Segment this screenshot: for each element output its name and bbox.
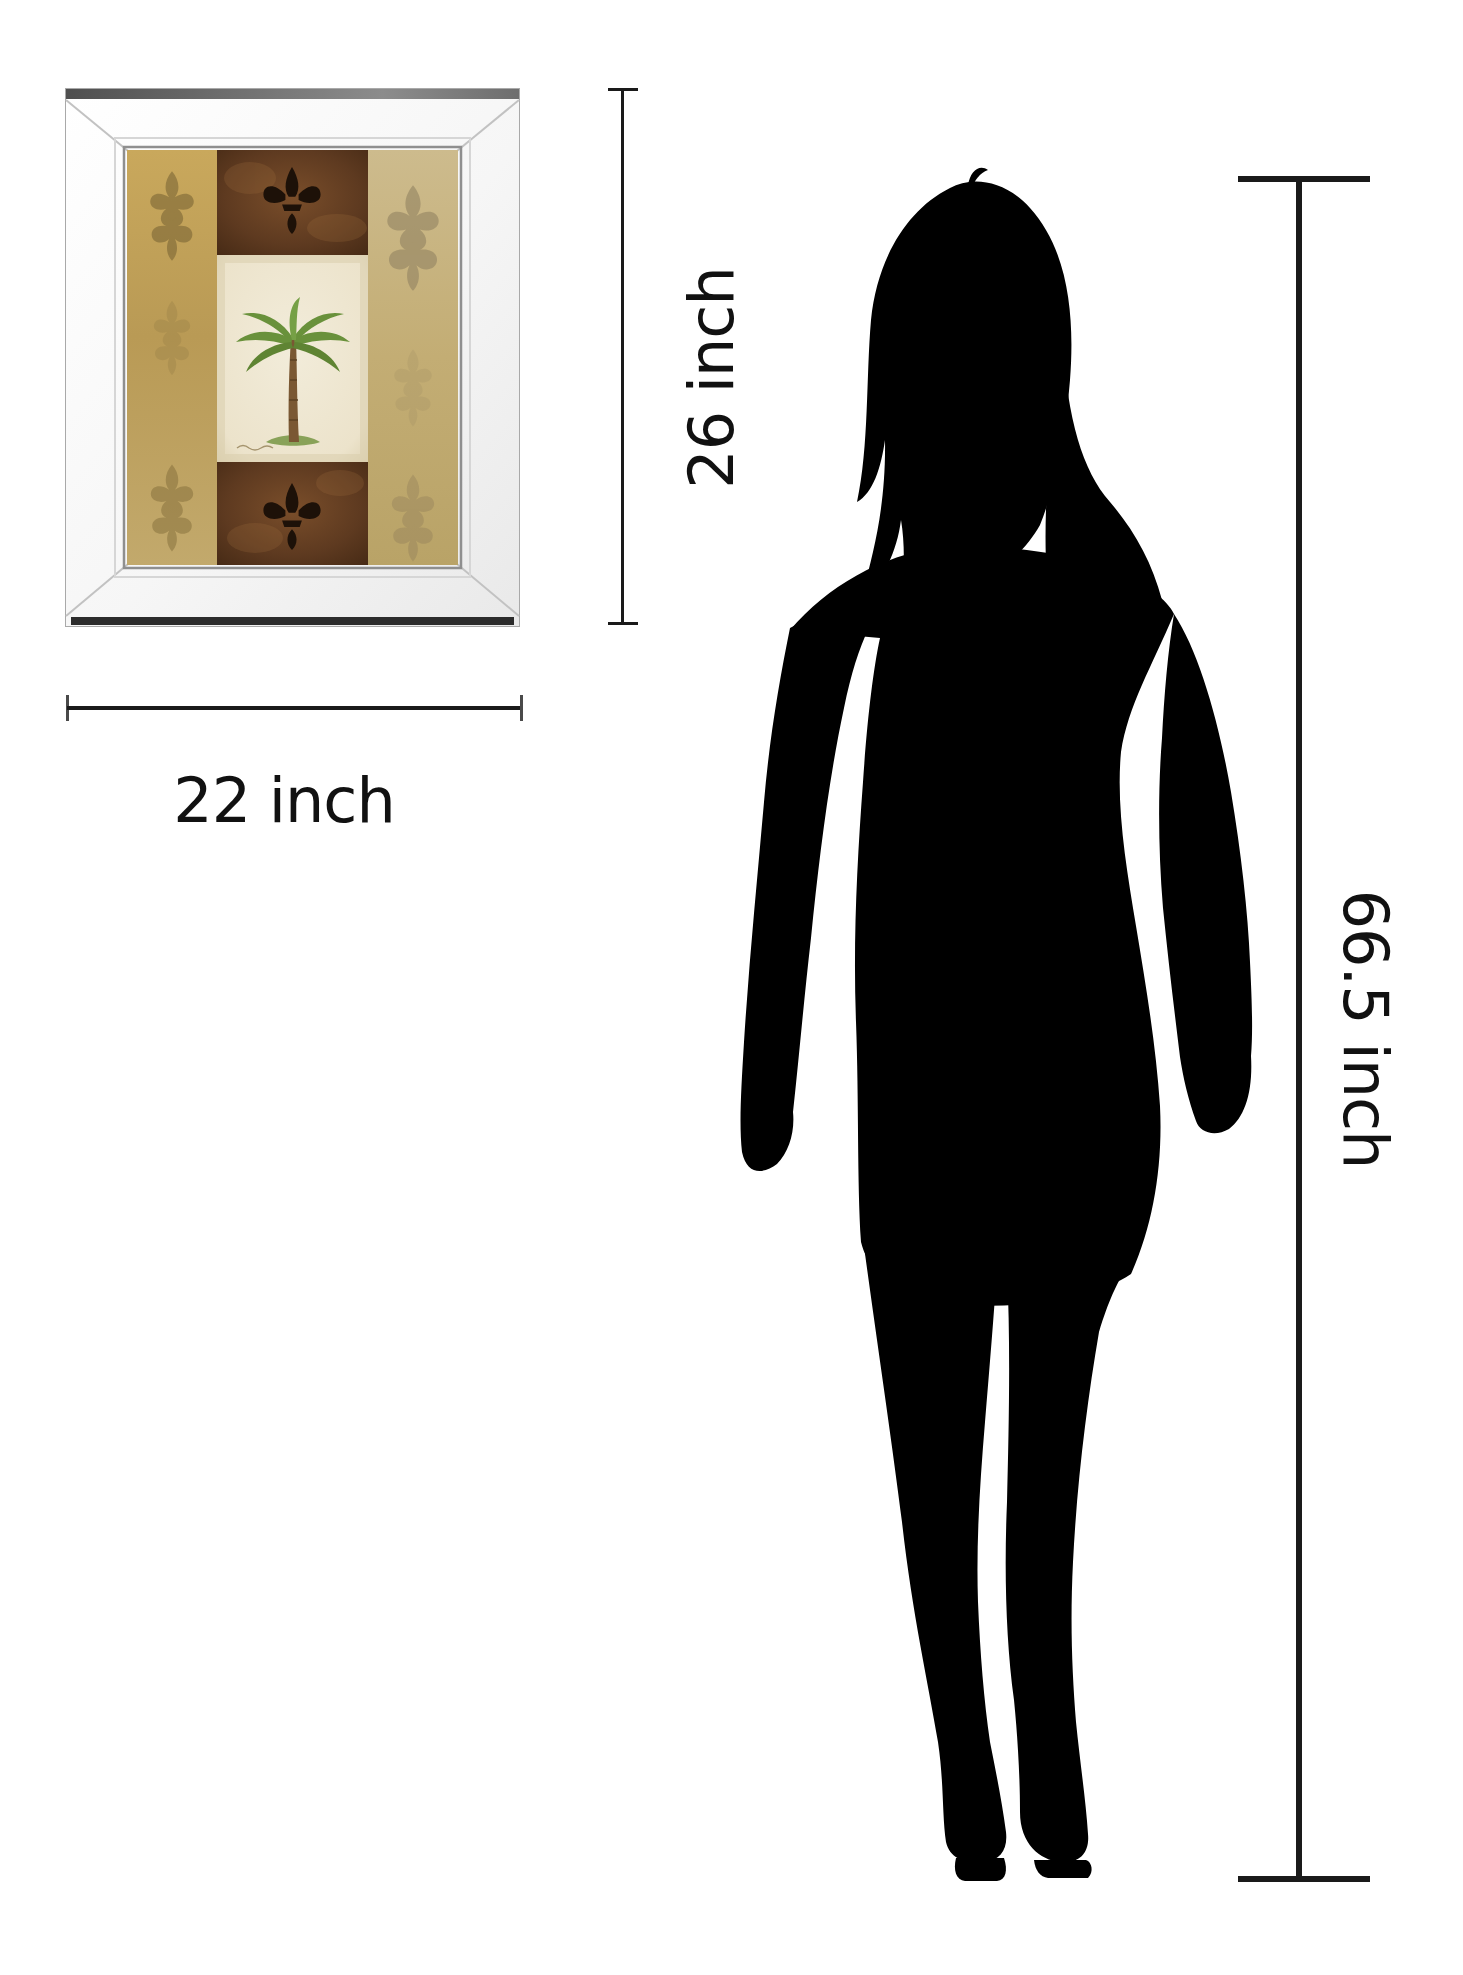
silhouette-left-arm — [741, 619, 869, 1171]
silhouette-right-leg — [1006, 1252, 1131, 1862]
woman-silhouette — [0, 0, 1463, 1975]
silhouette-left-leg — [862, 1232, 1006, 1862]
figure-height-label: 66.5 inch — [1329, 890, 1402, 1169]
silhouette-right-arm — [1159, 614, 1252, 1133]
dimension-cap-top — [1238, 176, 1370, 182]
dimension-cap-bottom — [1238, 1876, 1370, 1882]
product-size-diagram: 26 inch 22 inch — [0, 0, 1463, 1975]
dimension-line-vertical — [1296, 176, 1302, 1882]
